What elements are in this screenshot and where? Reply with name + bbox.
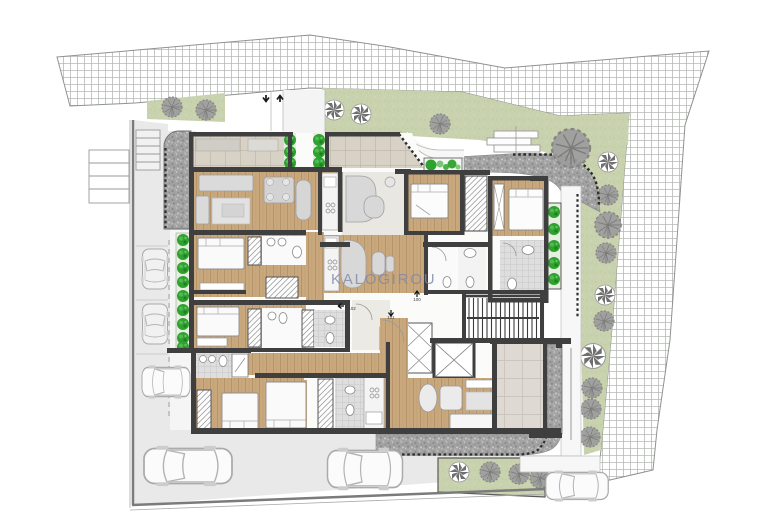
svg-text:100: 100 <box>413 297 421 302</box>
svg-text:KALOGIROU: KALOGIROU <box>331 271 436 288</box>
svg-text:102: 102 <box>348 306 356 311</box>
